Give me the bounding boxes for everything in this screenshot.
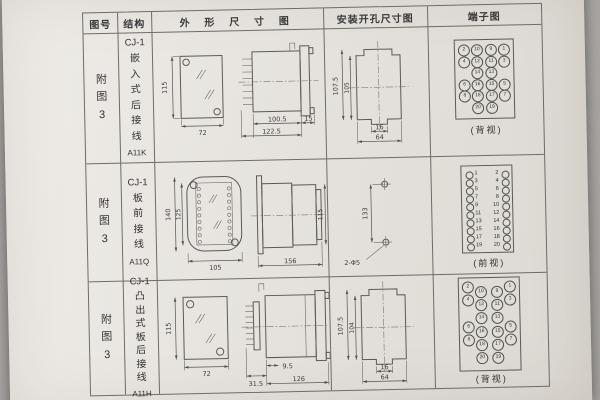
terminal-circle <box>466 187 474 195</box>
terminal-circle <box>467 227 475 235</box>
terminal-circle: 16 <box>476 326 488 338</box>
terminal-number: 7 <box>475 194 478 200</box>
outline-drawing-1: 115 72 100.5 15 122.5 <box>151 28 326 162</box>
outline-cell-3: 115 72 9.5 31.5 126 <box>157 276 331 394</box>
structure-name: 凸出式板后接线 <box>133 290 148 385</box>
terminal-circle <box>466 211 474 219</box>
terminal-circle: 19 <box>486 102 498 114</box>
model-label: CJ-1 <box>127 177 147 188</box>
terminal-number: 10 <box>488 202 499 208</box>
terminal-circle <box>501 170 509 178</box>
terminal-circle: 12 <box>475 299 487 311</box>
dim-label: 156 <box>284 257 297 265</box>
dim-label: 107.5 <box>336 317 344 336</box>
dim-label: 133 <box>361 207 369 220</box>
terminal-circle: 4 <box>462 295 474 307</box>
terminal-circle <box>467 235 475 243</box>
install-drawing-2: 133 2-Φ5 <box>328 159 430 273</box>
install-cell-3: 107.5 104 16 64 <box>329 274 435 390</box>
terminal-circle <box>502 202 510 210</box>
hole-count-label: 2-Φ5 <box>344 259 360 267</box>
terminal-circle: 3 <box>504 294 516 306</box>
terminal-circle: 15 <box>492 325 504 337</box>
dim-label: 31.5 <box>249 380 264 388</box>
dim-label: 9.5 <box>282 362 293 370</box>
terminal-number: 18 <box>489 234 500 240</box>
header-structure: 结构 <box>117 12 151 33</box>
terminal-circle <box>466 195 474 203</box>
terminal-circle: 18 <box>472 90 484 102</box>
terminal-grid-2: 1234567891011121314151617181920 <box>460 164 514 253</box>
terminal-circle <box>503 234 511 242</box>
document-photo: 图号 结构 外 形 尺 寸 图 安装开孔尺寸图 端子图 附图3 CJ-1 嵌入式… <box>0 0 600 400</box>
dim-label: 125 <box>175 208 182 220</box>
dim-label: 115 <box>165 322 173 335</box>
terminal-circle <box>503 242 511 250</box>
terminal-number: 6 <box>488 186 499 192</box>
terminal-circle <box>502 178 510 186</box>
terminal-circle: 16 <box>472 79 484 91</box>
terminal-circle: 20 <box>472 102 484 114</box>
dimensions: 115 72 9.5 31.5 126 <box>164 294 329 389</box>
header-terminal: 端子图 <box>427 4 541 26</box>
terminal-number: 16 <box>489 226 500 232</box>
terminal-circle: 7 <box>505 333 517 345</box>
terminal-number: 19 <box>476 242 482 248</box>
terminal-circle: 14 <box>475 312 487 324</box>
terminal-circle: 17 <box>492 338 504 350</box>
dim-label: 15 <box>304 115 312 123</box>
terminal-circle: 4 <box>458 56 470 68</box>
terminal-circle: 1 <box>504 280 516 292</box>
terminal-number: 2 <box>487 170 498 176</box>
terminal-circle: 7 <box>499 90 511 102</box>
terminal-circle: 13 <box>485 67 497 79</box>
dim-label: 115 <box>160 81 168 94</box>
terminal-number: 15 <box>476 226 482 232</box>
dim-label: 115 <box>317 209 324 221</box>
terminal-circle: 18 <box>476 339 488 351</box>
terminal-circle <box>502 186 510 194</box>
fig-no-label: 附图3 <box>93 72 110 123</box>
outline-drawing-2: 140 125 105 156 115 <box>154 158 328 280</box>
dim-label: 105 <box>344 82 351 94</box>
dim-label: 64 <box>375 133 383 141</box>
outline-cell-2: 140 125 105 156 115 <box>154 158 328 280</box>
install-drawing-1: 107.5 105 16 64 <box>326 34 428 150</box>
terminal-cell-2: 1234567891011121314151617181920 (前视) <box>430 154 546 274</box>
terminal-circle: 6 <box>459 79 471 91</box>
side-view <box>250 174 326 254</box>
terminal-number: 20 <box>489 242 500 248</box>
install-drawing-3: 107.5 104 16 64 <box>331 274 433 390</box>
front-view <box>187 176 243 251</box>
terminal-circle: 20 <box>476 352 488 364</box>
dim-label: 140 <box>164 208 172 221</box>
front-view <box>180 56 223 119</box>
terminal-cell-3: 2109141211314136161558181772019 (背视) <box>433 272 549 388</box>
terminal-number: 14 <box>488 218 499 224</box>
terminal-circle <box>466 203 474 211</box>
terminal-number: 12 <box>488 210 499 216</box>
terminal-view-label: (背视) <box>435 371 549 386</box>
dim-label: 64 <box>381 373 389 381</box>
terminal-number: 8 <box>488 194 499 200</box>
terminal-circle: 8 <box>459 91 471 103</box>
terminal-circle: 10 <box>471 44 483 56</box>
terminal-cell-1: 2109141211314136161558181772019 (背视) <box>427 24 544 156</box>
terminal-number: 13 <box>475 218 481 224</box>
structure-code: A11K <box>127 148 146 157</box>
dim-label: 105 <box>209 264 222 272</box>
structure-name: 嵌入式后接线 <box>128 51 143 144</box>
structure-name: 板前接线 <box>131 191 145 253</box>
structure-code: A11H <box>132 389 152 398</box>
terminal-circle <box>466 179 474 187</box>
terminal-view-label: (前视) <box>432 255 546 270</box>
model-label: CJ-1 <box>125 37 145 48</box>
terminal-circle: 9 <box>491 286 503 298</box>
terminal-circle: 3 <box>498 55 510 67</box>
paper-page: 图号 结构 外 形 尺 寸 图 安装开孔尺寸图 端子图 附图3 CJ-1 嵌入式… <box>2 0 593 400</box>
structure-cell-1: CJ-1 嵌入式后接线 A11K <box>117 32 154 163</box>
side-view <box>241 282 331 362</box>
dim-label: 126 <box>292 375 305 383</box>
terminal-number: 1 <box>474 170 477 176</box>
mounting-holes <box>379 178 392 248</box>
terminal-view-label: (背视) <box>429 122 543 137</box>
terminal-circle <box>465 171 473 179</box>
terminal-circle: 11 <box>485 55 497 67</box>
terminal-circle: 8 <box>463 334 475 346</box>
fig-no-label: 附图3 <box>98 312 115 363</box>
terminal-circle <box>466 219 474 227</box>
terminal-number: 5 <box>475 186 478 192</box>
terminal-number: 4 <box>488 178 499 184</box>
model-label: CJ-1 <box>130 276 150 287</box>
terminal-number: 11 <box>475 210 481 216</box>
terminal-number: 17 <box>476 234 482 240</box>
terminal-number: 9 <box>475 202 478 208</box>
terminal-circle: 13 <box>491 312 503 324</box>
terminal-grid-1: 2109141211314136161558181772019 <box>454 38 516 119</box>
terminal-circle: 10 <box>475 286 487 298</box>
terminal-circle: 2 <box>458 44 470 56</box>
header-install: 安装开孔尺寸图 <box>323 6 427 28</box>
terminal-circle <box>502 210 510 218</box>
dimensions: 115 72 100.5 15 122.5 <box>160 54 315 140</box>
front-view <box>183 296 228 359</box>
terminal-circle: 6 <box>463 321 475 333</box>
outline-drawing-3: 115 72 9.5 31.5 126 <box>157 276 331 394</box>
structure-code: A11Q <box>129 257 149 266</box>
terminal-circle: 1 <box>498 44 510 56</box>
dim-label: 16 <box>375 123 383 131</box>
install-cell-1: 107.5 105 16 64 <box>323 26 430 158</box>
terminal-circle: 12 <box>471 56 483 68</box>
terminal-number: 3 <box>475 178 478 184</box>
terminal-grid-3: 2109141211314136161558181772019 <box>458 276 522 371</box>
dim-label: 104 <box>349 322 356 334</box>
fig-no-label: 附图3 <box>96 196 113 247</box>
terminal-circle: 5 <box>499 78 511 90</box>
header-fig-no: 图号 <box>83 13 117 34</box>
dim-label: 107.5 <box>331 77 339 96</box>
terminal-circle: 14 <box>471 67 483 79</box>
terminal-circle: 5 <box>505 320 517 332</box>
terminal-circle <box>502 194 510 202</box>
terminal-circle: 9 <box>485 44 497 56</box>
terminal-circle <box>502 218 510 226</box>
terminal-circle <box>503 226 511 234</box>
terminal-circle: 15 <box>486 79 498 91</box>
terminal-circle <box>467 243 475 251</box>
terminal-circle: 2 <box>462 281 474 293</box>
fig-no-cell-2: 附图3 <box>86 163 122 282</box>
fig-no-cell-1: 附图3 <box>83 33 120 164</box>
dimension-table: 图号 结构 外 形 尺 寸 图 安装开孔尺寸图 端子图 附图3 CJ-1 嵌入式… <box>82 3 550 397</box>
dim-label: 16 <box>380 363 388 371</box>
dim-label: 100.5 <box>268 115 287 123</box>
terminal-circle: 11 <box>491 299 503 311</box>
dim-label: 72 <box>198 129 206 137</box>
structure-cell-3: CJ-1 凸出式板后接线 A11H <box>123 280 159 395</box>
fig-no-cell-3: 附图3 <box>89 281 125 396</box>
outline-cell-1: 115 72 100.5 15 122.5 <box>151 28 326 162</box>
dim-label: 122.5 <box>262 127 281 135</box>
dim-label: 72 <box>202 370 210 378</box>
install-cell-2: 133 2-Φ5 <box>326 156 432 276</box>
terminal-circle: 17 <box>486 90 498 102</box>
terminal-circle: 19 <box>492 352 504 364</box>
side-view <box>238 43 320 118</box>
structure-cell-2: CJ-1 板前接线 A11Q <box>120 162 156 281</box>
